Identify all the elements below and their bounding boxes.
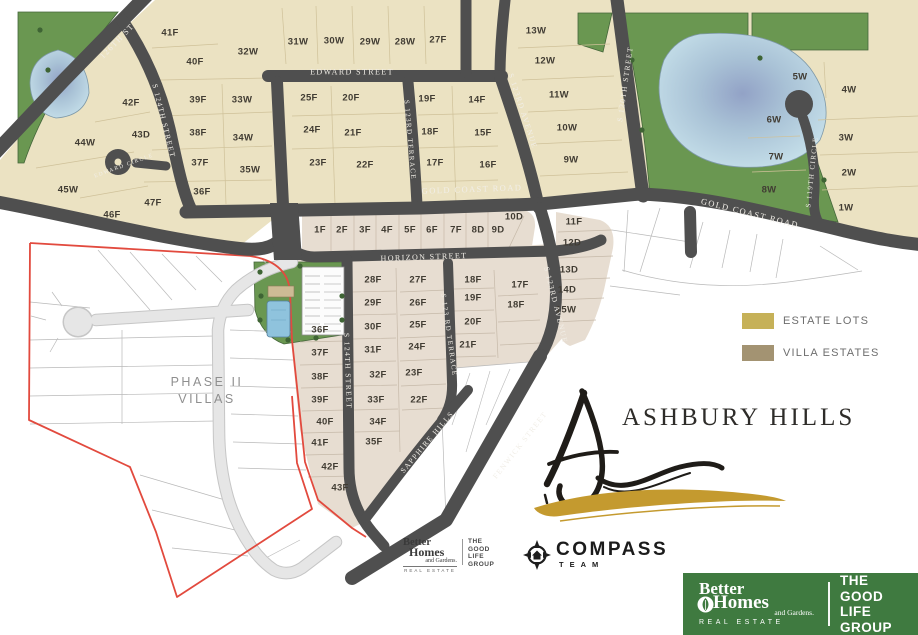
s-119th-circle-culdesac: [785, 90, 813, 118]
estate-lots-swatch: [742, 313, 774, 329]
villa-estates-swatch: [742, 345, 774, 361]
street-s-124th-mid: [277, 82, 283, 205]
good-life-group-mini: THE GOOD LIFE GROUP: [468, 538, 508, 568]
estate-lots-label: ESTATE LOTS: [783, 315, 869, 327]
street-junction: [270, 203, 302, 260]
bhg-homes: Homes: [403, 547, 457, 558]
legend: ESTATE LOTS VILLA ESTATES: [742, 313, 880, 377]
bhg-mini-logo: Better Homes and Gardens. REAL ESTATE: [403, 538, 457, 573]
bhg-real-estate: REAL ESTATE: [403, 566, 457, 573]
compass-team-logo: COMPASS TEAM: [522, 538, 668, 572]
brand-box: Better Homes and Gardens. REAL ESTATE TH…: [683, 573, 918, 635]
divider: [462, 539, 463, 565]
clubhouse-building: [302, 267, 344, 335]
phase-ii-villas-label: PHASE II VILLAS: [148, 374, 266, 408]
street-edward-circle-stem: [136, 163, 166, 166]
plat-map: 41F40F32W31W30W29W28W27F13W12W11W10W9W42…: [0, 0, 918, 635]
amenity-shed: [268, 286, 294, 297]
bhg-brand-logo: Better Homes and Gardens. REAL ESTATE: [699, 582, 816, 626]
compass-wordmark: COMPASS: [556, 541, 668, 559]
good-life-group-brand: THE GOOD LIFE GROUP: [840, 573, 918, 635]
swimming-pool: [267, 301, 290, 337]
divider: [828, 582, 830, 626]
page-title: ASHBURY HILLS: [622, 404, 855, 432]
street-s-123rd-avenue-top: [500, 0, 506, 76]
edward-circle-center: [115, 159, 122, 166]
footer-logos: Better Homes and Gardens. REAL ESTATE TH…: [403, 538, 668, 573]
ashbury-hills-logo: [520, 372, 810, 532]
legend-item-villa-estates: VILLA ESTATES: [742, 345, 880, 361]
street-stub-south-of-gold-coast: [690, 212, 691, 252]
legend-item-estate-lots: ESTATE LOTS: [742, 313, 880, 329]
compass-team-word: TEAM: [556, 560, 668, 569]
villa-estates-label: VILLA ESTATES: [783, 347, 880, 359]
compass-icon: [522, 538, 552, 572]
leaf-icon: [697, 596, 714, 613]
